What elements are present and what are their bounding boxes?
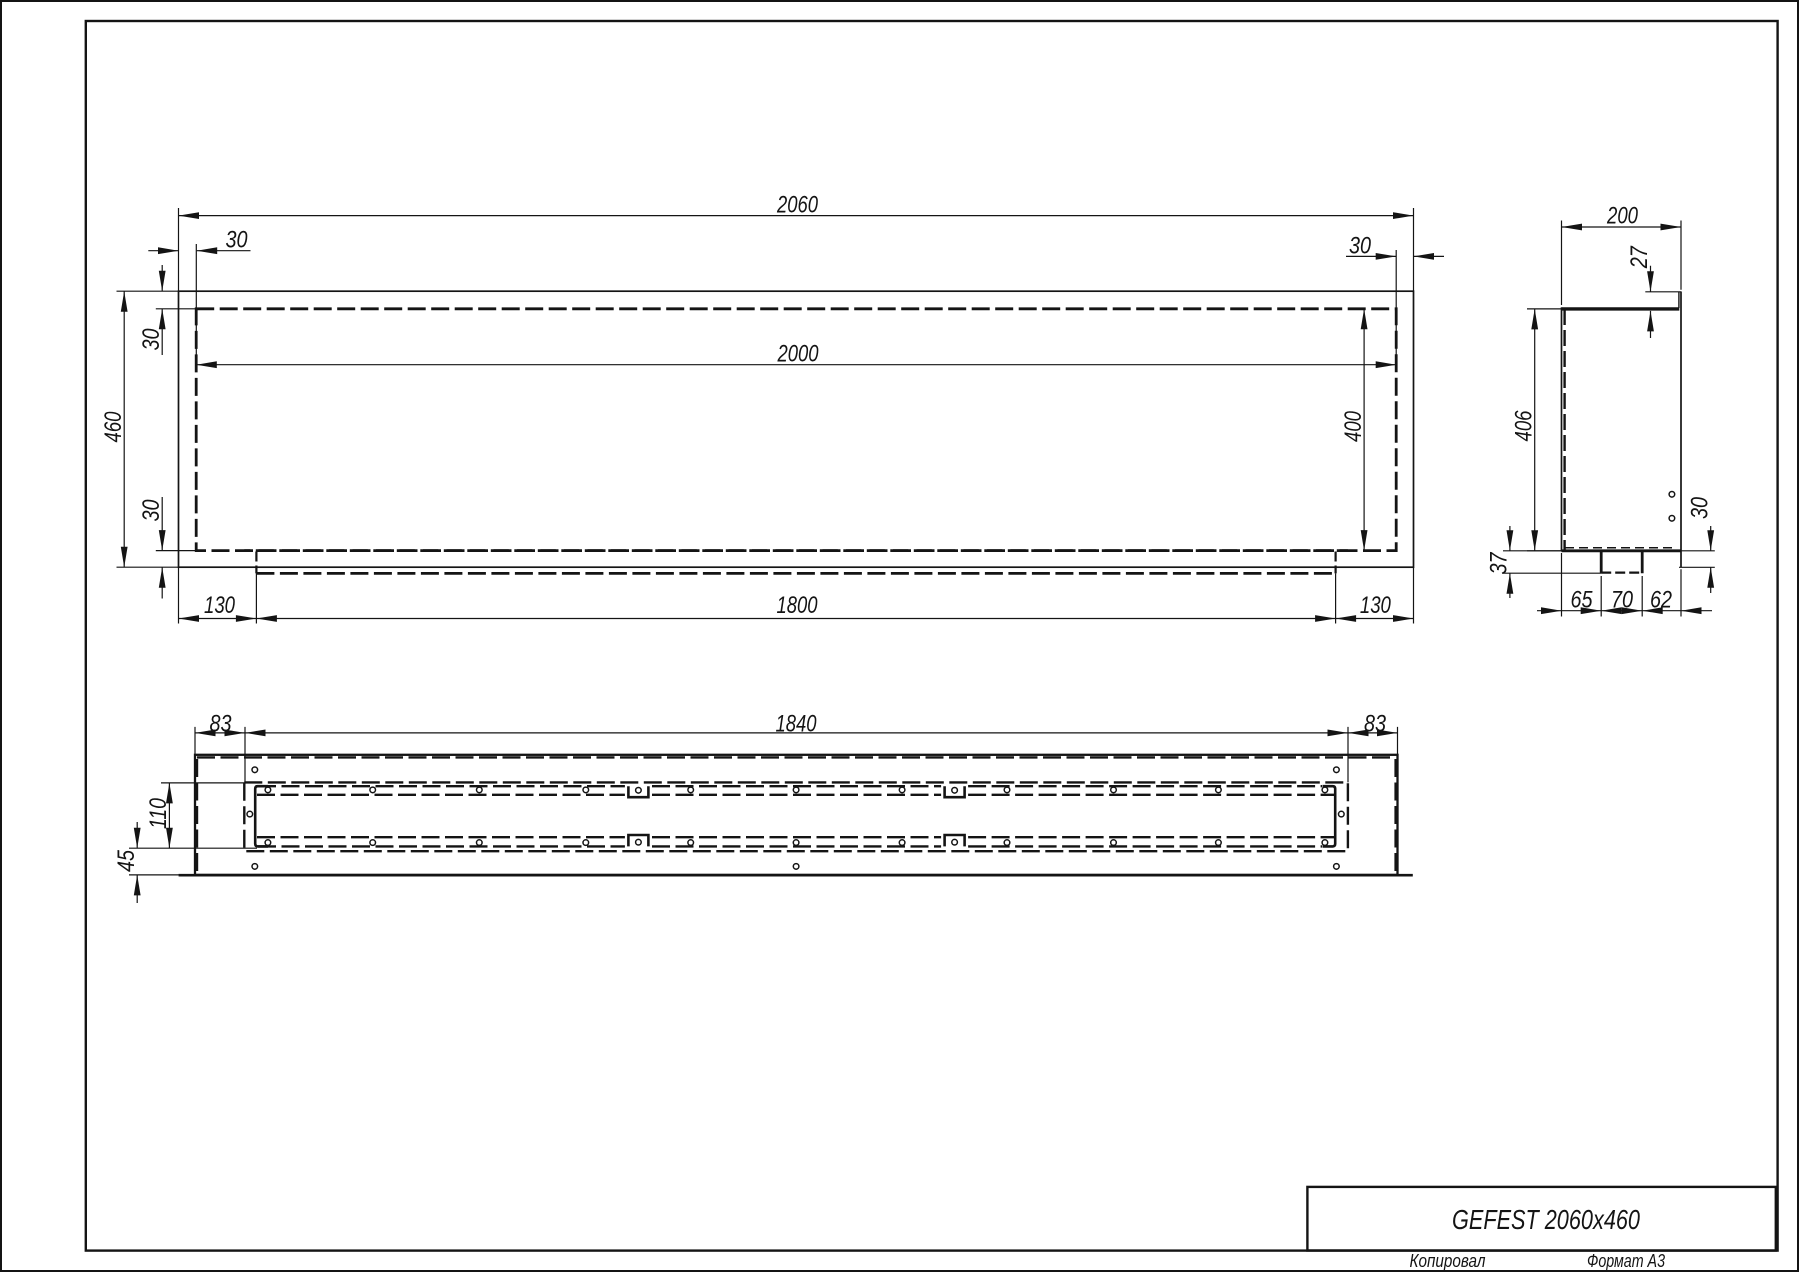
svg-text:200: 200 [1606,203,1638,230]
svg-text:30: 30 [1349,232,1372,259]
svg-text:37: 37 [1486,551,1513,574]
svg-text:130: 130 [204,592,236,619]
svg-text:62: 62 [1650,587,1672,614]
svg-text:GEFEST 2060x460: GEFEST 2060x460 [1452,1204,1640,1235]
svg-text:30: 30 [138,499,165,522]
svg-text:30: 30 [138,328,165,351]
svg-text:30: 30 [226,227,249,254]
svg-text:Копировал: Копировал [1410,1251,1486,1271]
svg-text:27: 27 [1626,245,1653,269]
svg-text:1840: 1840 [776,710,818,737]
svg-text:Формат А3: Формат А3 [1587,1251,1665,1271]
svg-text:1800: 1800 [777,592,819,619]
svg-text:110: 110 [145,797,172,829]
svg-text:406: 406 [1510,410,1537,442]
svg-text:83: 83 [210,710,233,737]
svg-text:83: 83 [1364,710,1387,737]
svg-text:70: 70 [1611,587,1634,614]
svg-text:2060: 2060 [776,191,818,218]
svg-text:2000: 2000 [777,341,819,368]
svg-text:65: 65 [1571,587,1594,614]
svg-text:400: 400 [1340,410,1367,442]
svg-text:30: 30 [1686,496,1713,519]
svg-text:45: 45 [113,849,140,872]
svg-text:130: 130 [1360,592,1392,619]
svg-text:460: 460 [100,411,127,443]
